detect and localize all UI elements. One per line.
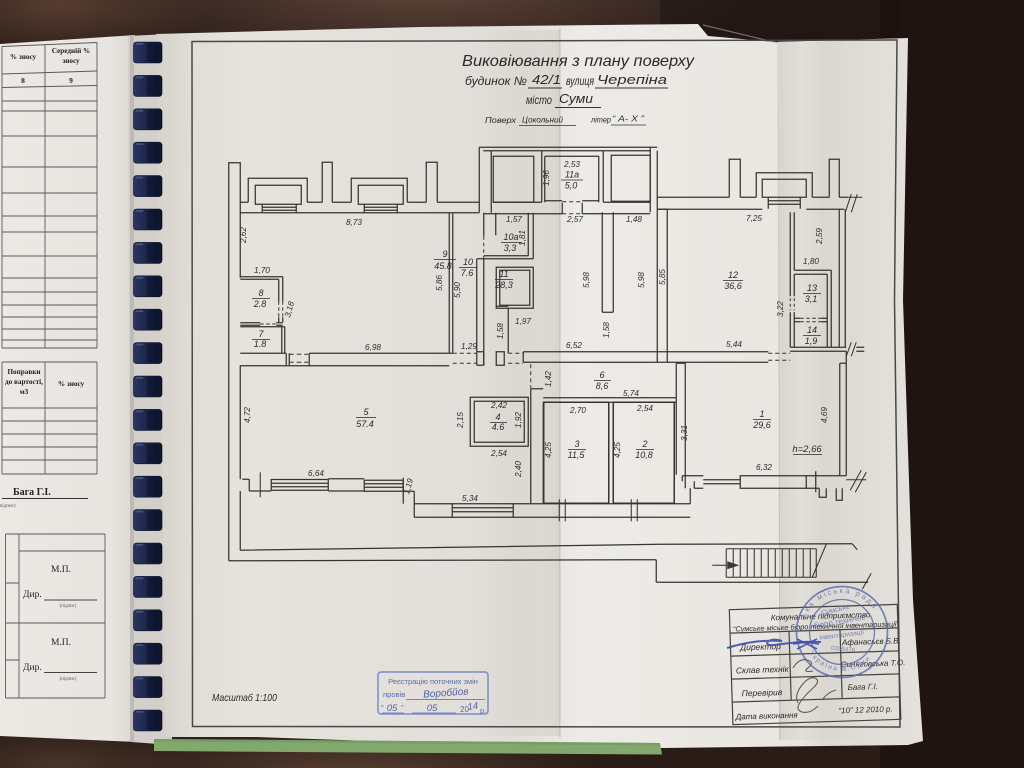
svg-text:4,72: 4,72 [243, 407, 252, 423]
svg-text:5,98: 5,98 [582, 272, 591, 288]
svg-text:3,3: 3,3 [504, 243, 517, 253]
svg-text:Середній %: Середній % [52, 46, 90, 55]
svg-text:Склав технік: Склав технік [736, 664, 790, 676]
svg-text:місто: місто [526, 93, 552, 107]
svg-text:57.4: 57.4 [356, 419, 374, 429]
svg-text:5,34: 5,34 [462, 494, 478, 503]
svg-text:5,85: 5,85 [658, 269, 667, 285]
svg-text:9: 9 [442, 249, 447, 259]
svg-text:р.: р. [480, 706, 486, 715]
svg-text:2,40: 2,40 [514, 461, 523, 478]
svg-text:11,5: 11,5 [568, 450, 586, 460]
svg-text:“ А- Х ”: “ А- Х ” [612, 114, 645, 124]
svg-text:(підпис): (підпис) [60, 604, 77, 609]
svg-text:Цокольний: Цокольний [522, 115, 563, 125]
svg-text:10: 10 [463, 257, 473, 267]
svg-text:провів: провів [383, 690, 405, 699]
svg-text:м3: м3 [20, 388, 29, 396]
svg-text:літер: літер [590, 115, 611, 125]
svg-text:2,70: 2,70 [569, 406, 586, 415]
svg-text:42/1: 42/1 [532, 72, 561, 87]
svg-text:29,6: 29,6 [752, 420, 771, 430]
svg-text:Дир.: Дир. [23, 590, 42, 600]
svg-text:будинок №: будинок № [465, 74, 527, 88]
svg-text:1,58: 1,58 [496, 323, 505, 339]
svg-text:28,3: 28,3 [494, 280, 513, 290]
svg-text:5,74: 5,74 [623, 389, 639, 398]
svg-text:“10” 12 2010 р.: “10” 12 2010 р. [838, 705, 893, 716]
svg-text:1: 1 [759, 409, 764, 419]
svg-text:10а: 10а [503, 232, 518, 242]
svg-text:1,96: 1,96 [542, 170, 551, 186]
svg-text:2.8: 2.8 [253, 299, 267, 309]
svg-text:4: 4 [495, 412, 500, 422]
svg-text:Бага Г.І.: Бага Г.І. [847, 682, 878, 692]
svg-text:11а: 11а [565, 170, 579, 180]
svg-text:5,98: 5,98 [637, 272, 646, 288]
svg-text:1,70: 1,70 [254, 266, 270, 275]
svg-text:2,57: 2,57 [566, 215, 583, 224]
svg-text:1,29: 1,29 [461, 342, 477, 351]
svg-text:Поправки: Поправки [7, 368, 40, 376]
svg-text:13: 13 [807, 283, 817, 293]
svg-text:14: 14 [807, 325, 817, 335]
svg-text:1,81: 1,81 [518, 230, 527, 246]
svg-text:1,97: 1,97 [515, 317, 531, 326]
svg-text:2,53: 2,53 [563, 160, 580, 169]
svg-text:45.8: 45.8 [434, 261, 452, 271]
svg-text:2,62: 2,62 [239, 227, 248, 244]
svg-text:Поверх: Поверх [485, 115, 517, 125]
svg-text:h=2,66: h=2,66 [792, 444, 822, 455]
svg-text:7.6: 7.6 [461, 268, 474, 278]
svg-text:1,92: 1,92 [514, 412, 523, 428]
svg-text:% зносу: % зносу [58, 380, 85, 388]
svg-text:8: 8 [258, 288, 263, 298]
svg-text:4.6: 4.6 [492, 422, 505, 432]
svg-text:% зносу: % зносу [10, 53, 37, 61]
svg-text:6,98: 6,98 [365, 343, 381, 352]
svg-text:”: ” [401, 704, 404, 713]
svg-text:3,22: 3,22 [776, 301, 785, 317]
svg-text:2,54: 2,54 [490, 449, 507, 458]
svg-text:“: “ [381, 704, 384, 713]
svg-text:4,69: 4,69 [820, 407, 829, 423]
svg-text:Виковіювання з плану поверху: Виковіювання з плану поверху [462, 53, 695, 70]
svg-text:7,25: 7,25 [746, 214, 762, 223]
svg-text:(підпис): (підпис) [0, 504, 16, 509]
svg-text:36,6: 36,6 [724, 281, 742, 291]
svg-text:Перевірив: Перевірив [742, 687, 783, 698]
svg-text:5,86: 5,86 [435, 275, 444, 291]
svg-text:5,0: 5,0 [565, 181, 578, 191]
svg-text:1,9: 1,9 [805, 336, 818, 346]
svg-text:2,54: 2,54 [636, 404, 653, 413]
svg-text:Масштаб 1:100: Масштаб 1:100 [212, 692, 277, 704]
svg-text:Дир.: Дир. [23, 663, 42, 673]
svg-text:1,48: 1,48 [626, 215, 642, 224]
svg-text:1,80: 1,80 [803, 257, 819, 266]
svg-text:8: 8 [21, 76, 25, 85]
svg-text:3: 3 [574, 439, 579, 449]
svg-text:2: 2 [641, 439, 647, 449]
svg-text:14: 14 [467, 701, 479, 713]
svg-text:зносу: зносу [62, 57, 80, 65]
svg-text:(підпис): (підпис) [60, 677, 77, 682]
svg-text:Суми: Суми [559, 91, 593, 106]
svg-text:1,57: 1,57 [506, 215, 522, 224]
svg-text:3,1: 3,1 [805, 294, 818, 304]
svg-text:4,25: 4,25 [613, 442, 622, 458]
svg-text:8,73: 8,73 [346, 218, 362, 227]
svg-text:10,8: 10,8 [635, 450, 653, 460]
svg-text:вулиця: вулиця [566, 74, 594, 88]
svg-text:Реєстрацію поточних змін: Реєстрацію поточних змін [388, 677, 478, 686]
svg-text:6,64: 6,64 [308, 469, 324, 478]
svg-text:1.8: 1.8 [254, 339, 267, 349]
svg-text:11: 11 [499, 269, 508, 279]
svg-text:5,44: 5,44 [726, 340, 742, 349]
svg-text:6,52: 6,52 [566, 341, 582, 350]
svg-text:6: 6 [599, 370, 604, 380]
svg-text:12: 12 [728, 270, 738, 280]
svg-text:6,32: 6,32 [756, 463, 772, 472]
svg-text:05: 05 [387, 703, 398, 714]
svg-text:1,42: 1,42 [544, 371, 553, 387]
svg-text:М.П.: М.П. [51, 638, 71, 648]
svg-text:2,59: 2,59 [815, 228, 824, 245]
svg-text:Черепіна: Черепіна [597, 72, 667, 87]
svg-text:1,58: 1,58 [602, 322, 611, 338]
svg-text:М.П.: М.П. [51, 565, 71, 575]
svg-text:2,15: 2,15 [456, 412, 465, 429]
svg-text:до вартості,: до вартості, [5, 377, 43, 386]
svg-text:5,90: 5,90 [453, 282, 462, 298]
svg-text:2,42: 2,42 [490, 401, 507, 410]
svg-text:9: 9 [69, 76, 73, 85]
svg-text:05: 05 [427, 703, 438, 714]
svg-text:8,6: 8,6 [596, 381, 609, 391]
svg-text:4,25: 4,25 [544, 442, 553, 458]
svg-text:3,31: 3,31 [680, 425, 689, 441]
svg-text:Бага Г.І.: Бага Г.І. [13, 487, 51, 498]
